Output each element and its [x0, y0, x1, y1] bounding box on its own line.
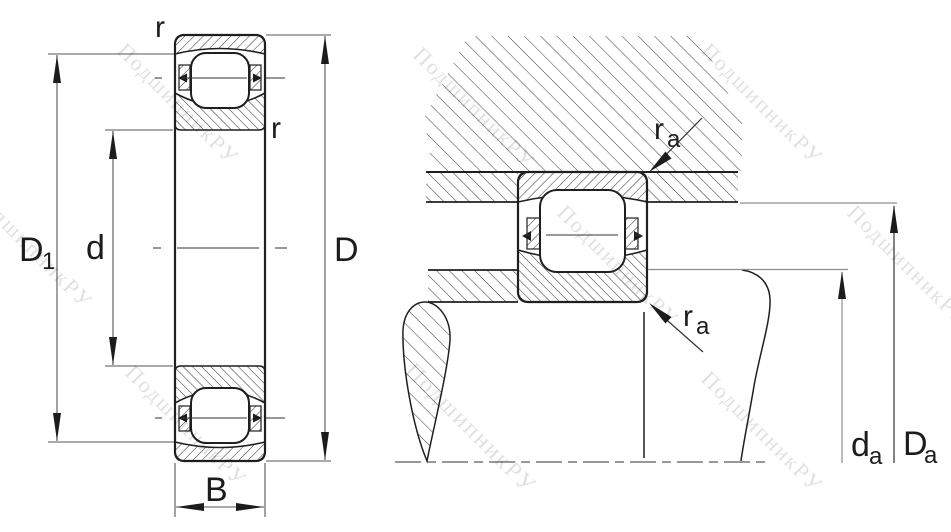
technical-drawing-page: D 1 d D B r: [0, 0, 951, 532]
watermarks: ПодшипникРУ ПодшипникРУ ПодшипникРУ Подш…: [0, 38, 951, 499]
label-r-top: r: [155, 11, 165, 44]
housing-shoulder-left: [426, 172, 518, 202]
label-ra-top-sub: a: [667, 126, 681, 153]
label-r-side: r: [271, 112, 281, 145]
label-ra-bottom-sub: a: [696, 313, 710, 340]
watermark-text: ПодшипникРУ: [0, 182, 98, 314]
watermark-text: ПодшипникРУ: [842, 200, 951, 332]
label-d: d: [86, 229, 105, 267]
label-D: D: [334, 231, 359, 269]
label-da-sub: a: [869, 443, 883, 470]
barrel-roller-top: [191, 53, 249, 108]
shaft-shoulder-section: [428, 270, 518, 302]
label-ra-top-main: r: [654, 113, 664, 146]
watermark-text: ПодшипникРУ: [696, 366, 828, 498]
label-Da-sub: a: [924, 442, 938, 469]
label-da-main: d: [851, 426, 870, 464]
housing-shoulder-right: [648, 172, 738, 202]
label-ra-bottom-main: r: [683, 300, 693, 333]
bearing-drawing-canvas: D 1 d D B r: [0, 0, 951, 532]
